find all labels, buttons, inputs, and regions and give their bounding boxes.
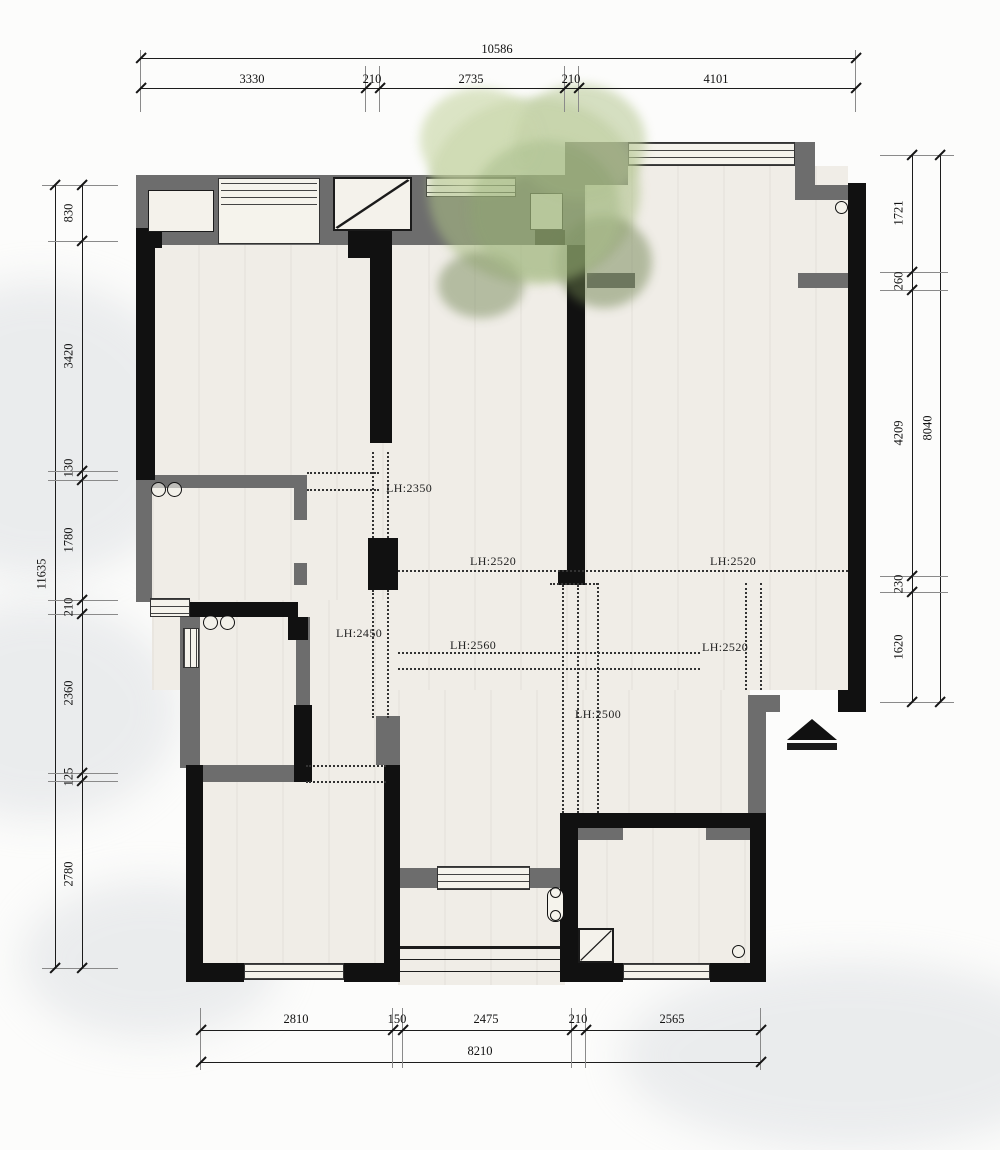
- dim-bottom-total: 8210: [468, 1044, 493, 1059]
- radiator-knob-icon: [550, 887, 561, 898]
- extension-line: [42, 185, 118, 186]
- ceiling-height-label: LH:2520: [702, 640, 748, 655]
- wall-segment: [376, 716, 400, 765]
- dim-top-seg: 2735: [459, 72, 484, 87]
- dim-right-seg: 1721: [892, 201, 907, 226]
- dim-top-seg: 4101: [704, 72, 729, 87]
- ceiling-height-label: LH:2520: [470, 554, 516, 569]
- sill-line: [400, 971, 560, 972]
- wall-segment: [294, 705, 312, 782]
- wall-segment: [578, 828, 623, 840]
- dim-bottom-seg: 2475: [474, 1012, 499, 1027]
- extension-line: [880, 576, 948, 577]
- wall-segment: [186, 602, 298, 617]
- entrance-arrow-bar: [787, 743, 837, 750]
- extension-line: [760, 1008, 761, 1070]
- drain-icon: [835, 201, 848, 214]
- wall-segment: [368, 538, 398, 590]
- tree-foliage: [470, 140, 620, 280]
- dim-right-seg: 4209: [892, 421, 907, 446]
- entrance-arrow-icon: [787, 719, 837, 740]
- wall-segment: [560, 813, 752, 828]
- ceiling-height-label: LH:2350: [386, 481, 432, 496]
- wall-segment: [810, 185, 850, 200]
- dim-left-seg: 210: [62, 598, 77, 617]
- dimension-line: [940, 155, 941, 702]
- ceiling-height-label: LH:2520: [710, 554, 756, 569]
- extension-line: [880, 702, 954, 703]
- wall-segment: [710, 963, 766, 982]
- wall-segment: [798, 273, 848, 288]
- wall-segment: [200, 765, 307, 782]
- floor-area: [398, 690, 750, 815]
- wall-segment: [560, 963, 623, 982]
- dim-right-seg: 230: [892, 575, 907, 594]
- guide-line: [398, 652, 700, 654]
- guide-line: [306, 765, 386, 767]
- dim-left-total: 11635: [35, 559, 50, 590]
- dim-bottom-seg: 2565: [660, 1012, 685, 1027]
- drain-icon: [732, 945, 745, 958]
- radiator-icon: [547, 888, 564, 922]
- flue-shaft-icon: [333, 177, 412, 231]
- wall-segment: [288, 617, 308, 640]
- wall-segment: [706, 828, 750, 840]
- extension-line: [48, 480, 118, 481]
- wall-segment: [750, 813, 766, 982]
- wall-segment: [136, 480, 152, 602]
- guide-line: [307, 489, 379, 491]
- extension-line: [48, 600, 118, 601]
- guide-line: [387, 590, 389, 718]
- guide-line: [372, 590, 374, 718]
- extension-line: [48, 773, 118, 774]
- window-symbol: [183, 628, 199, 668]
- wall-segment: [294, 475, 307, 520]
- window-glazing-lines: [221, 183, 317, 209]
- extension-line: [48, 471, 118, 472]
- dim-top-seg: 210: [363, 72, 382, 87]
- guide-line: [562, 585, 564, 813]
- guide-line: [398, 668, 700, 670]
- dim-bottom-seg: 2810: [284, 1012, 309, 1027]
- window-symbol: [244, 963, 344, 980]
- guide-line: [307, 472, 379, 474]
- dim-left-seg: 125: [62, 768, 77, 787]
- dim-bottom-seg: 210: [569, 1012, 588, 1027]
- wall-segment: [848, 183, 866, 690]
- wall-segment: [186, 765, 203, 982]
- pipe-icon: [203, 615, 218, 630]
- floor-plan-page: { "drawing": {"type": "residential floor…: [0, 0, 1000, 1103]
- wall-segment: [398, 868, 438, 888]
- extension-line: [855, 50, 856, 112]
- pipe-icon: [220, 615, 235, 630]
- dimension-line: [140, 58, 855, 59]
- extension-line: [880, 155, 954, 156]
- window-symbol: [628, 142, 795, 166]
- extension-line: [48, 241, 118, 242]
- extension-line: [140, 50, 141, 112]
- extension-line: [880, 290, 948, 291]
- dim-top-total: 10586: [481, 42, 512, 57]
- dim-top-seg: 3330: [240, 72, 265, 87]
- extension-line: [42, 968, 118, 969]
- guide-line: [306, 781, 386, 783]
- flue-shaft-icon: [578, 928, 614, 963]
- guide-line: [760, 583, 762, 690]
- dimension-line: [55, 185, 56, 968]
- guide-line: [597, 583, 599, 813]
- guide-line: [577, 585, 579, 813]
- dim-right-seg: 1620: [892, 635, 907, 660]
- ceiling-height-label: LH:2500: [575, 707, 621, 722]
- dim-right-seg: 260: [892, 272, 907, 291]
- pipe-icon: [151, 482, 166, 497]
- wall-segment: [838, 690, 866, 712]
- dimension-line: [200, 1062, 760, 1063]
- sill-line: [400, 946, 560, 949]
- guide-line: [398, 570, 848, 572]
- guide-line: [372, 452, 374, 538]
- radiator-knob-icon: [550, 910, 561, 921]
- window-symbol: [623, 963, 710, 980]
- dim-left-seg: 830: [62, 204, 77, 223]
- wall-segment: [748, 695, 766, 815]
- dimension-line: [82, 185, 83, 968]
- dim-bottom-seg: 150: [388, 1012, 407, 1027]
- sill-line: [400, 959, 560, 960]
- guide-line: [745, 583, 747, 690]
- window-symbol: [218, 178, 320, 244]
- wall-segment: [186, 963, 244, 982]
- ceiling-height-label: LH:2450: [336, 626, 382, 641]
- extension-line: [48, 614, 118, 615]
- dim-left-seg: 130: [62, 459, 77, 478]
- shaft-box: [148, 190, 214, 232]
- extension-line: [200, 1008, 201, 1070]
- window-symbol: [150, 598, 190, 617]
- ceiling-height-label: LH:2560: [450, 638, 496, 653]
- wall-segment: [748, 695, 780, 712]
- wall-segment: [294, 563, 307, 585]
- dimension-line: [200, 1030, 760, 1031]
- dimension-line: [912, 155, 913, 702]
- dimension-line: [140, 88, 855, 89]
- window-symbol: [437, 866, 530, 890]
- extension-line: [880, 592, 948, 593]
- watercolor-hill: [620, 960, 1000, 1150]
- wall-segment: [136, 245, 155, 480]
- dim-left-seg: 1780: [62, 528, 77, 553]
- dim-left-seg: 3420: [62, 344, 77, 369]
- wall-segment: [370, 245, 392, 443]
- dim-top-seg: 210: [562, 72, 581, 87]
- extension-line: [880, 272, 948, 273]
- pipe-icon: [167, 482, 182, 497]
- dim-left-seg: 2780: [62, 862, 77, 887]
- dim-left-seg: 2360: [62, 681, 77, 706]
- guide-line: [550, 583, 598, 585]
- dim-right-total: 8040: [921, 416, 936, 441]
- wall-segment: [384, 765, 400, 982]
- extension-line: [48, 781, 118, 782]
